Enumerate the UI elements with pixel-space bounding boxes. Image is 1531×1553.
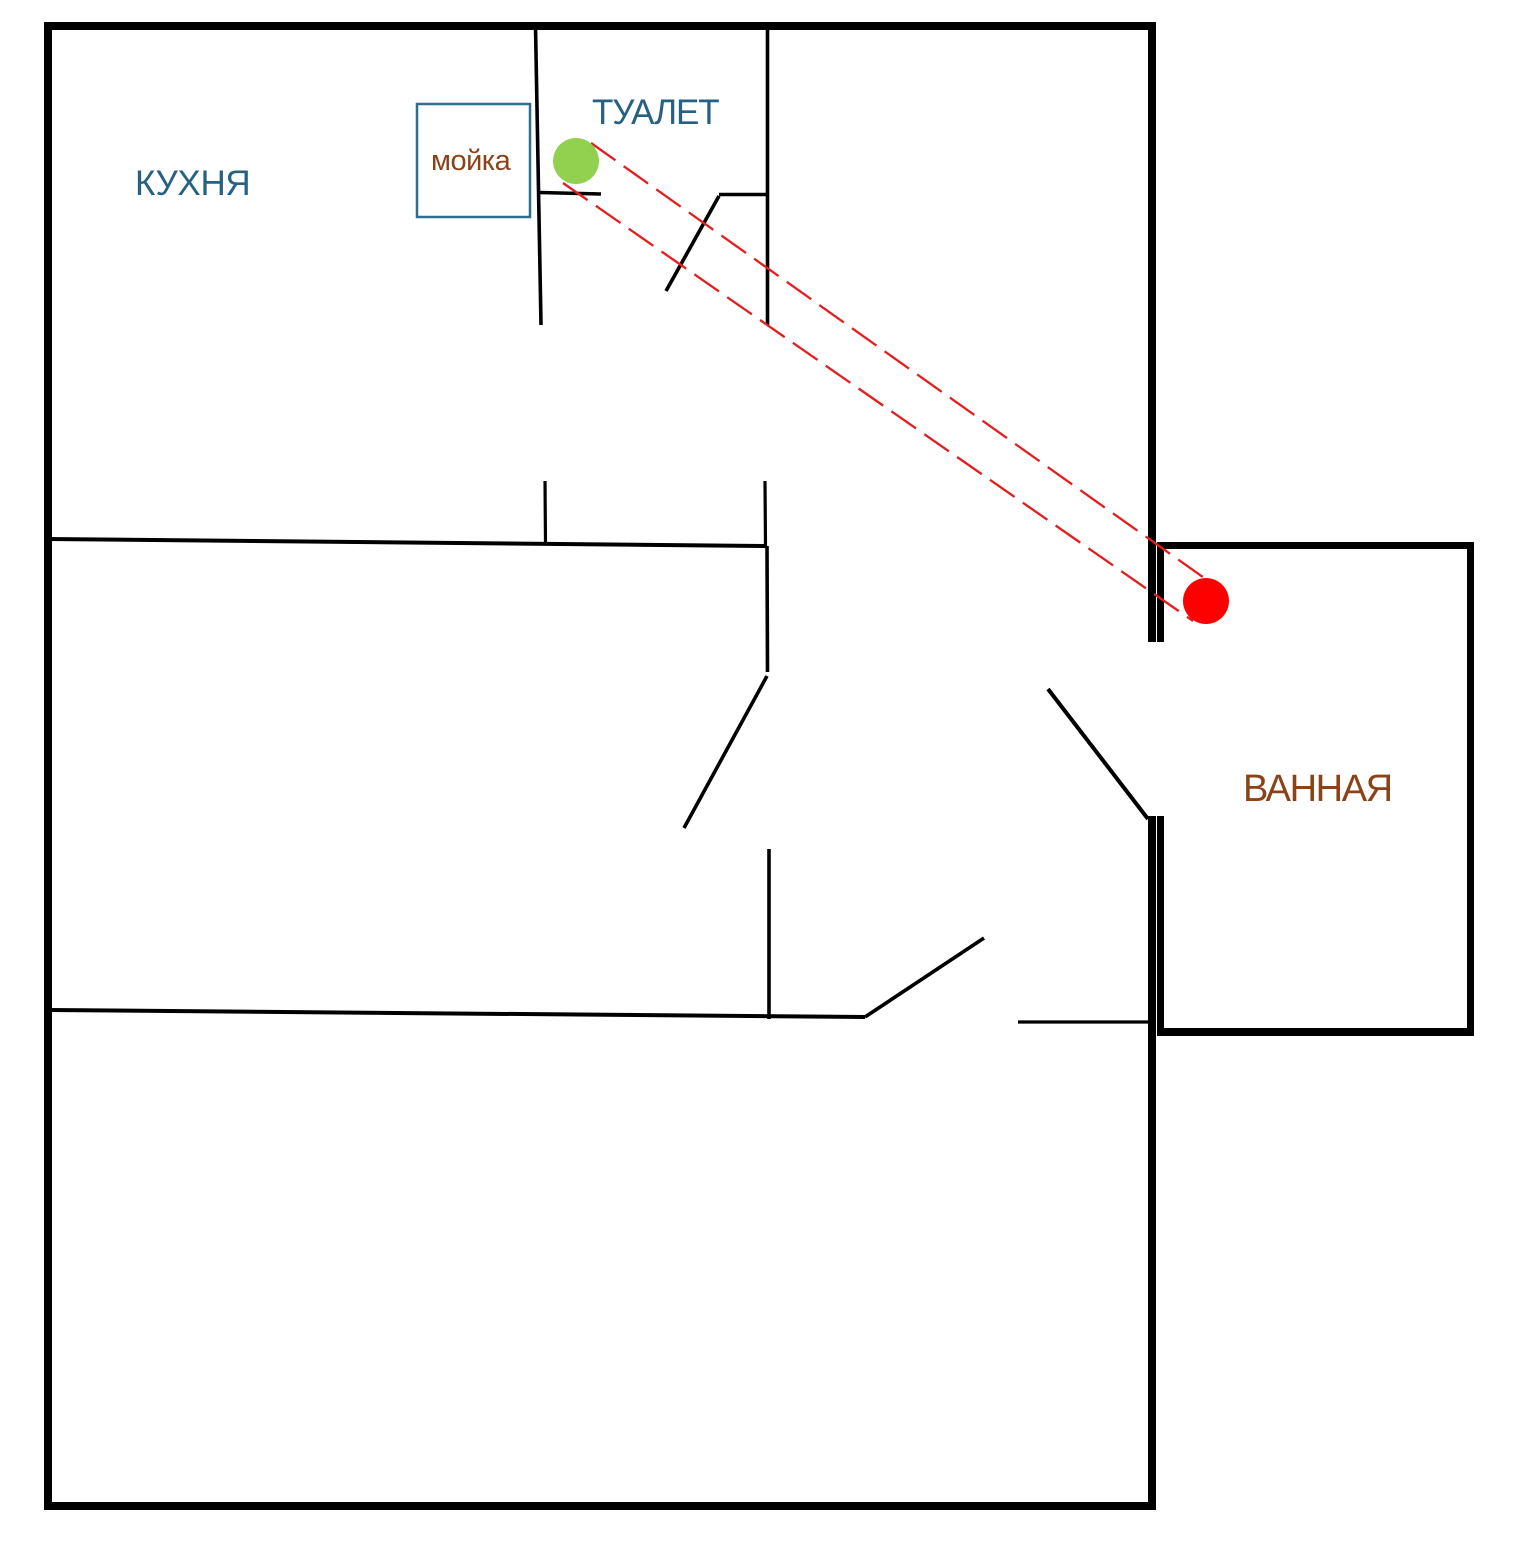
svg-text:КУХНЯ: КУХНЯ: [135, 164, 250, 203]
svg-text:ВАННАЯ: ВАННАЯ: [1243, 768, 1392, 810]
svg-text:ТУАЛЕТ: ТУАЛЕТ: [592, 93, 719, 132]
svg-text:мойка: мойка: [431, 145, 512, 177]
